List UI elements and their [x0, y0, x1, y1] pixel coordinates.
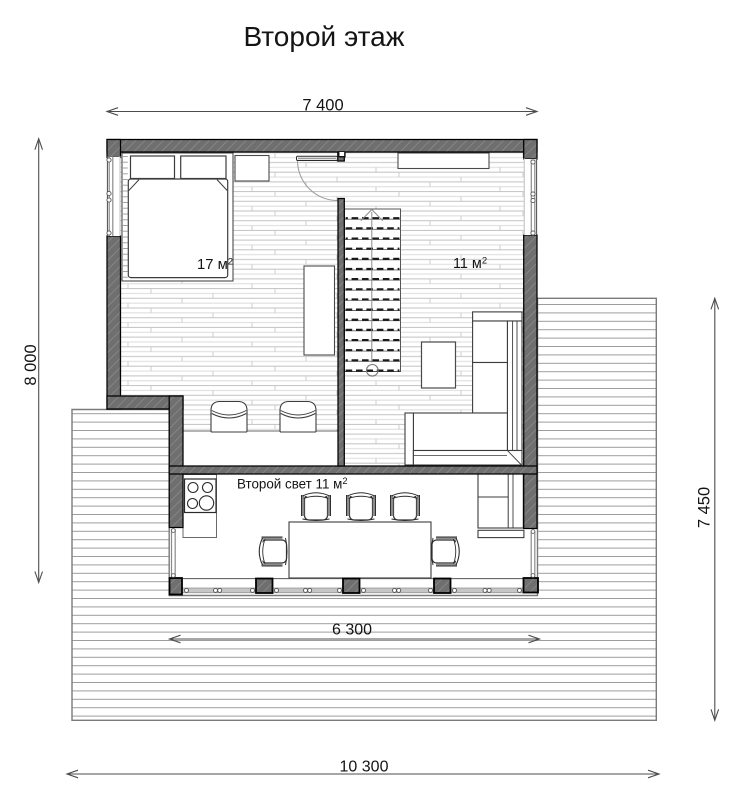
- svg-text:17 м2: 17 м2: [197, 257, 233, 274]
- svg-text:6 300: 6 300: [332, 622, 372, 639]
- svg-text:10 300: 10 300: [340, 758, 389, 775]
- svg-text:7 450: 7 450: [696, 487, 714, 528]
- svg-text:Второй свет 11 м2: Второй свет 11 м2: [237, 476, 348, 491]
- svg-text:7 400: 7 400: [302, 96, 343, 114]
- svg-text:8 000: 8 000: [22, 344, 40, 385]
- svg-text:Второй этаж: Второй этаж: [244, 21, 405, 52]
